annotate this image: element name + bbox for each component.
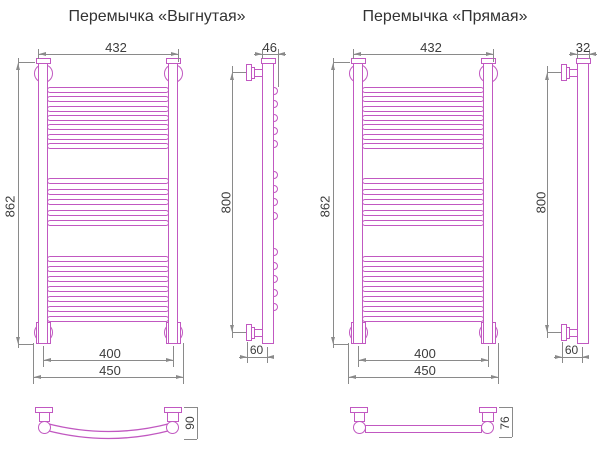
radiator-rung bbox=[47, 296, 169, 302]
dimension-arrow bbox=[331, 63, 335, 70]
dimension-arrow bbox=[331, 337, 335, 344]
collector-pipe bbox=[353, 61, 363, 344]
dim-inner-width: 400 bbox=[400, 347, 450, 360]
crossbar-straight-bar bbox=[365, 425, 482, 433]
crossbar-ball-joint bbox=[481, 421, 494, 434]
radiator-rung bbox=[47, 220, 169, 226]
dimension-arrow bbox=[545, 73, 549, 80]
crossbar-curved-bar bbox=[44, 420, 173, 444]
collector-pipe bbox=[168, 61, 178, 344]
extension-line bbox=[488, 346, 489, 367]
dim-side-depth: 46 bbox=[245, 41, 295, 54]
dimension-line bbox=[18, 344, 33, 345]
extension-line bbox=[183, 343, 184, 384]
dimension-arrow bbox=[34, 375, 41, 379]
crossbar-mount-cap bbox=[479, 407, 497, 413]
dimension-arrow bbox=[491, 375, 498, 379]
radiator-rung bbox=[47, 189, 169, 195]
radiator-rung bbox=[47, 316, 169, 322]
dimension-arrow bbox=[44, 358, 51, 362]
dimension-arrow bbox=[176, 375, 183, 379]
crossbar-mount-cap bbox=[350, 407, 368, 413]
radiator-rung bbox=[362, 306, 484, 312]
dimension-line bbox=[18, 62, 35, 63]
dimension-arrow bbox=[359, 358, 366, 362]
dimension-line bbox=[333, 58, 334, 348]
dimension-line bbox=[233, 332, 246, 333]
dimension-arrow bbox=[354, 52, 361, 56]
dim-crossbar-depth: 90 bbox=[184, 398, 196, 448]
radiator-rung bbox=[362, 316, 484, 322]
radiator-rung bbox=[362, 96, 484, 102]
dimension-arrow bbox=[230, 73, 234, 80]
radiator-rung bbox=[47, 143, 169, 149]
radiator-rung bbox=[362, 115, 484, 121]
wall-bracket-plate bbox=[561, 64, 567, 81]
radiator-rung bbox=[362, 124, 484, 130]
dim-wall-distance: 60 bbox=[547, 344, 597, 356]
dim-wall-distance: 60 bbox=[232, 344, 282, 356]
radiator-rung bbox=[362, 220, 484, 226]
dimension-line bbox=[333, 344, 348, 345]
wall-bracket-plate bbox=[561, 324, 567, 341]
radiator-rung bbox=[362, 178, 484, 184]
radiator-rung bbox=[47, 256, 169, 262]
radiator-rung bbox=[362, 286, 484, 292]
collector-pipe bbox=[483, 61, 493, 344]
wall-bracket-plate bbox=[246, 324, 252, 341]
dim-outer-width: 450 bbox=[400, 364, 450, 377]
dimension-arrow bbox=[481, 358, 488, 362]
extension-line bbox=[493, 49, 494, 62]
radiator-rung bbox=[47, 199, 169, 205]
radiator-rung bbox=[47, 306, 169, 312]
radiator-rung bbox=[47, 134, 169, 140]
crossbar-ball-joint bbox=[38, 421, 51, 434]
radiator-rung bbox=[362, 256, 484, 262]
dimension-line bbox=[548, 72, 561, 73]
extension-line bbox=[173, 346, 174, 367]
dim-inner-width: 400 bbox=[85, 347, 135, 360]
dim-height: 862 bbox=[4, 181, 17, 231]
dimension-arrow bbox=[171, 52, 178, 56]
dimension-line bbox=[548, 332, 561, 333]
crossbar-mount-cap bbox=[164, 407, 182, 413]
title-curved-crossbar: Перемычка «Выгнутая» bbox=[47, 8, 267, 26]
radiator-rung bbox=[47, 178, 169, 184]
side-pipe bbox=[262, 61, 274, 344]
radiator-rung bbox=[47, 276, 169, 282]
radiator-rung bbox=[47, 286, 169, 292]
radiator-rung bbox=[47, 266, 169, 272]
radiator-rung bbox=[362, 143, 484, 149]
radiator-rung bbox=[47, 106, 169, 112]
collector-pipe bbox=[38, 61, 48, 344]
radiator-rung bbox=[362, 296, 484, 302]
radiator-rung bbox=[362, 276, 484, 282]
radiator-rung bbox=[362, 106, 484, 112]
radiator-rung bbox=[362, 134, 484, 140]
dimension-arrow bbox=[545, 325, 549, 332]
dim-top-width: 432 bbox=[91, 41, 141, 54]
dim-outer-width: 450 bbox=[85, 364, 135, 377]
radiator-rung bbox=[362, 199, 484, 205]
dimension-arrow bbox=[16, 337, 20, 344]
crossbar-ball-joint bbox=[353, 421, 366, 434]
dimension-line bbox=[233, 72, 246, 73]
dimension-line bbox=[333, 62, 350, 63]
dimension-arrow bbox=[166, 358, 173, 362]
technical-drawing-canvas: Перемычка «Выгнутая» Перемычка «Прямая» … bbox=[0, 0, 600, 449]
extension-line bbox=[178, 49, 179, 62]
dimension-arrow bbox=[486, 52, 493, 56]
radiator-rung bbox=[47, 87, 169, 93]
crossbar-ball-joint bbox=[166, 421, 179, 434]
side-pipe bbox=[577, 61, 589, 344]
extension-line bbox=[43, 346, 44, 367]
dimension-arrow bbox=[16, 63, 20, 70]
dim-height: 862 bbox=[319, 181, 332, 231]
crossbar-mount-cap bbox=[35, 407, 53, 413]
title-straight-crossbar: Перемычка «Прямая» bbox=[335, 8, 555, 26]
radiator-rung bbox=[47, 124, 169, 130]
extension-line bbox=[498, 343, 499, 384]
dimension-arrow bbox=[349, 375, 356, 379]
dim-crossbar-depth: 76 bbox=[499, 398, 511, 448]
radiator-rung bbox=[47, 210, 169, 216]
radiator-rung bbox=[47, 115, 169, 121]
dimension-line bbox=[18, 58, 19, 348]
radiator-rung bbox=[362, 266, 484, 272]
dim-side-depth: 32 bbox=[558, 41, 600, 54]
dimension-arrow bbox=[230, 325, 234, 332]
radiator-rung bbox=[362, 189, 484, 195]
wall-bracket-plate bbox=[246, 64, 252, 81]
radiator-rung bbox=[362, 210, 484, 216]
radiator-rung bbox=[362, 87, 484, 93]
dim-side-height: 800 bbox=[534, 177, 547, 227]
dimension-arrow bbox=[39, 52, 46, 56]
radiator-rung bbox=[47, 96, 169, 102]
dim-side-height: 800 bbox=[219, 177, 232, 227]
dim-top-width: 432 bbox=[406, 41, 456, 54]
extension-line bbox=[358, 346, 359, 367]
